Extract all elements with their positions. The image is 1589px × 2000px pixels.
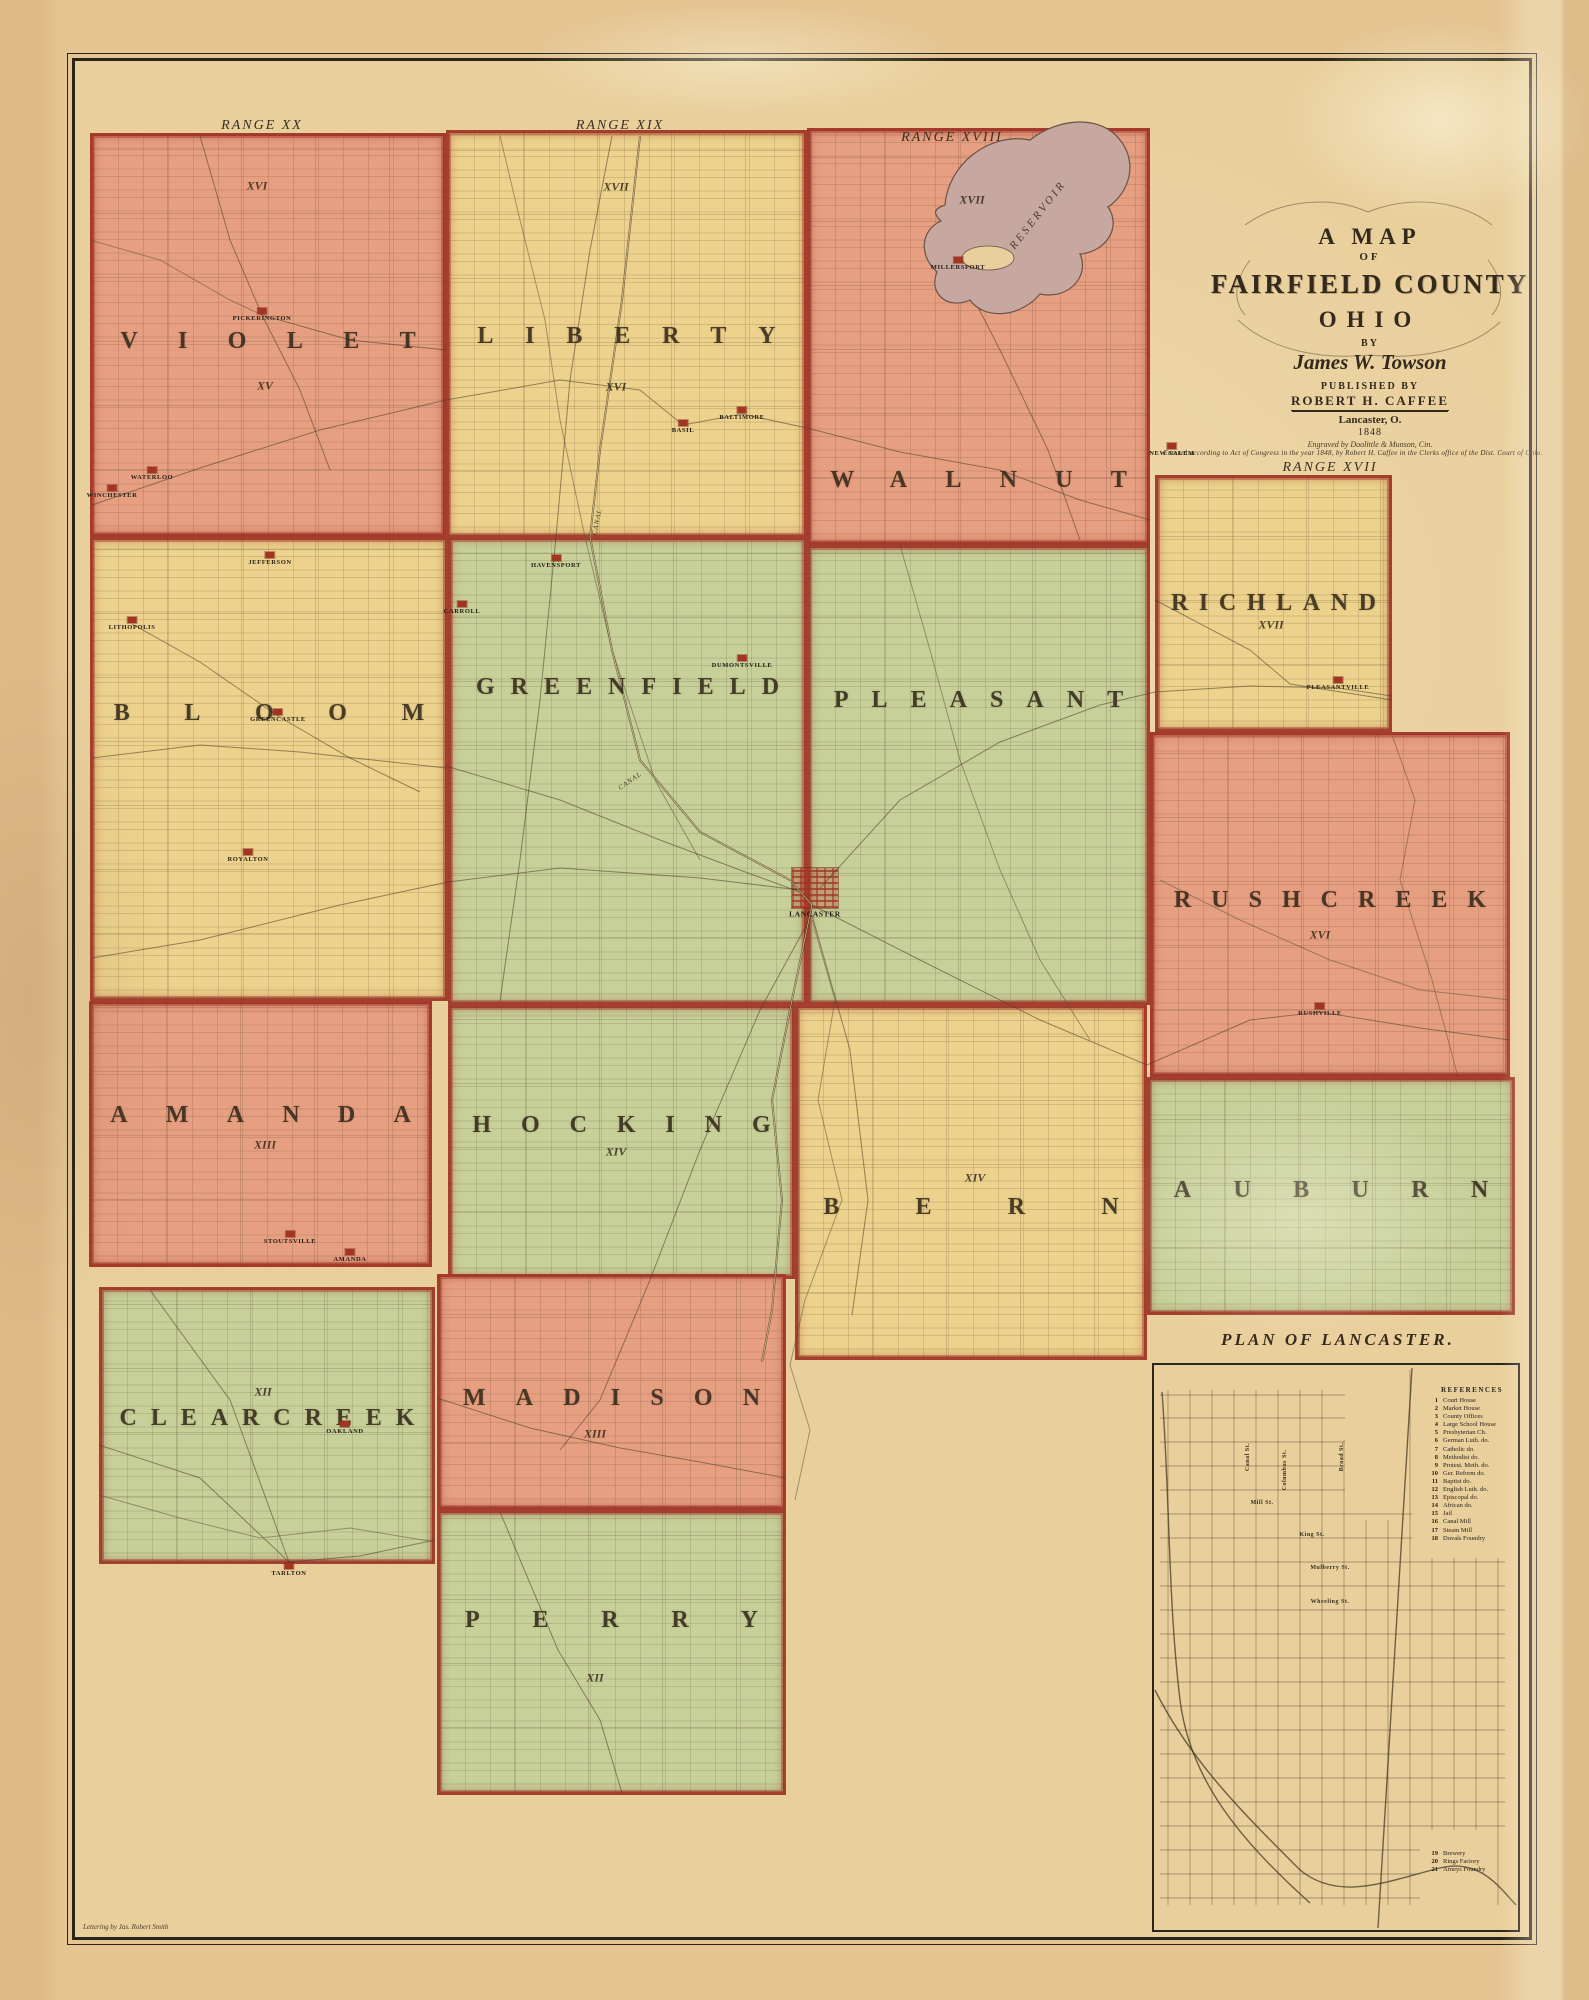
reference-item: 10Ger. Reform do. [1426, 1470, 1518, 1478]
reference-item: 16Canal Mill [1426, 1518, 1518, 1526]
street-broad-st-: Broad St. [1339, 1443, 1345, 1472]
range-label: RANGE XVII [1282, 460, 1377, 476]
references-title: REFERENCES [1426, 1386, 1518, 1394]
reference-item: 17Steam Mill [1426, 1527, 1518, 1535]
township-pleasant [807, 545, 1150, 1005]
reference-item: 20Rings Factory [1426, 1858, 1518, 1866]
city-lancaster-hatch [792, 868, 838, 908]
reference-item: 9Protest. Meth. do. [1426, 1462, 1518, 1470]
township-greenfield [448, 537, 807, 1005]
range-label: RANGE XX [221, 118, 303, 134]
township-hocking [448, 1005, 795, 1279]
street-king-st-: King St. [1299, 1532, 1324, 1538]
street-wheeling-st-: Wheeling St. [1311, 1599, 1350, 1605]
reference-item: 1Court House [1426, 1397, 1518, 1405]
title-author: James W. Towson [1208, 350, 1532, 375]
reference-item: 2Market House [1426, 1405, 1518, 1413]
township-bloom [90, 537, 448, 1001]
township-rushcreek [1150, 732, 1510, 1077]
range-label: RANGE XVIII [901, 130, 1003, 146]
township-perry [437, 1510, 786, 1795]
street-mill-st-: Mill St. [1251, 1500, 1274, 1506]
title-county: FAIRFIELD COUNTY [1208, 269, 1532, 300]
title-block: A MAP OF FAIRFIELD COUNTY OHIO BY James … [1208, 224, 1532, 449]
title-a-map: A MAP [1208, 224, 1532, 250]
reference-item: 7Catholic do. [1426, 1446, 1518, 1454]
township-madison [437, 1274, 786, 1510]
title-place: Lancaster, O. [1208, 414, 1532, 426]
reference-item: 19Brewery [1426, 1850, 1518, 1858]
reference-item: 4Large School House [1426, 1421, 1518, 1429]
title-by: BY [1208, 338, 1532, 349]
street-canal-st-: Canal St. [1245, 1443, 1251, 1471]
range-label: RANGE XIX [576, 118, 664, 134]
reference-item: 14African do. [1426, 1502, 1518, 1510]
reference-item: 11Baptist do. [1426, 1478, 1518, 1486]
reference-item: 8Methodist do. [1426, 1454, 1518, 1462]
copyright-line: Entered according to Act of Congress in … [1163, 449, 1542, 457]
township-richland [1155, 475, 1392, 732]
township-walnut [807, 128, 1150, 545]
title-year: 1848 [1208, 427, 1532, 438]
reference-item: 5Presbyterian Ch. [1426, 1429, 1518, 1437]
title-publisher: ROBERT H. CAFFEE [1291, 393, 1449, 411]
lancaster-inset-title: PLAN OF LANCASTER. [1221, 1330, 1455, 1350]
lettering-credit: Lettering by Jas. Robert Smith [83, 1923, 168, 1931]
township-clearcreek [99, 1287, 435, 1564]
fairfield-county-map: A MAP OF FAIRFIELD COUNTY OHIO BY James … [0, 0, 1589, 2000]
references-list: REFERENCES 1Court House2Market House3Cou… [1426, 1386, 1518, 1543]
reference-item: 12English Luth. do. [1426, 1486, 1518, 1494]
township-amanda [89, 1001, 432, 1267]
reference-item: 21Arneys Foundry [1426, 1866, 1518, 1874]
title-published-by: PUBLISHED BY [1208, 381, 1532, 392]
reference-item: 6German Luth. do. [1426, 1437, 1518, 1445]
street-mulberry-st-: Mulberry St. [1310, 1565, 1349, 1571]
township-violet [90, 133, 446, 537]
title-of: OF [1208, 251, 1532, 263]
reference-item: 15Jail [1426, 1510, 1518, 1518]
title-engraver: Engraved by Doolittle & Munson, Cin. [1208, 440, 1532, 449]
reference-item: 3County Offices [1426, 1413, 1518, 1421]
township-liberty [446, 130, 807, 538]
title-ohio: OHIO [1208, 307, 1532, 333]
township-auburn [1147, 1077, 1515, 1315]
references-list-extra: 19Brewery20Rings Factory21Arneys Foundry [1426, 1850, 1518, 1874]
reference-item: 18Duvals Foundry [1426, 1535, 1518, 1543]
street-columbus-st-: Columbus St. [1282, 1450, 1288, 1491]
reference-item: 13Episcopal do. [1426, 1494, 1518, 1502]
township-bern [795, 1005, 1147, 1360]
